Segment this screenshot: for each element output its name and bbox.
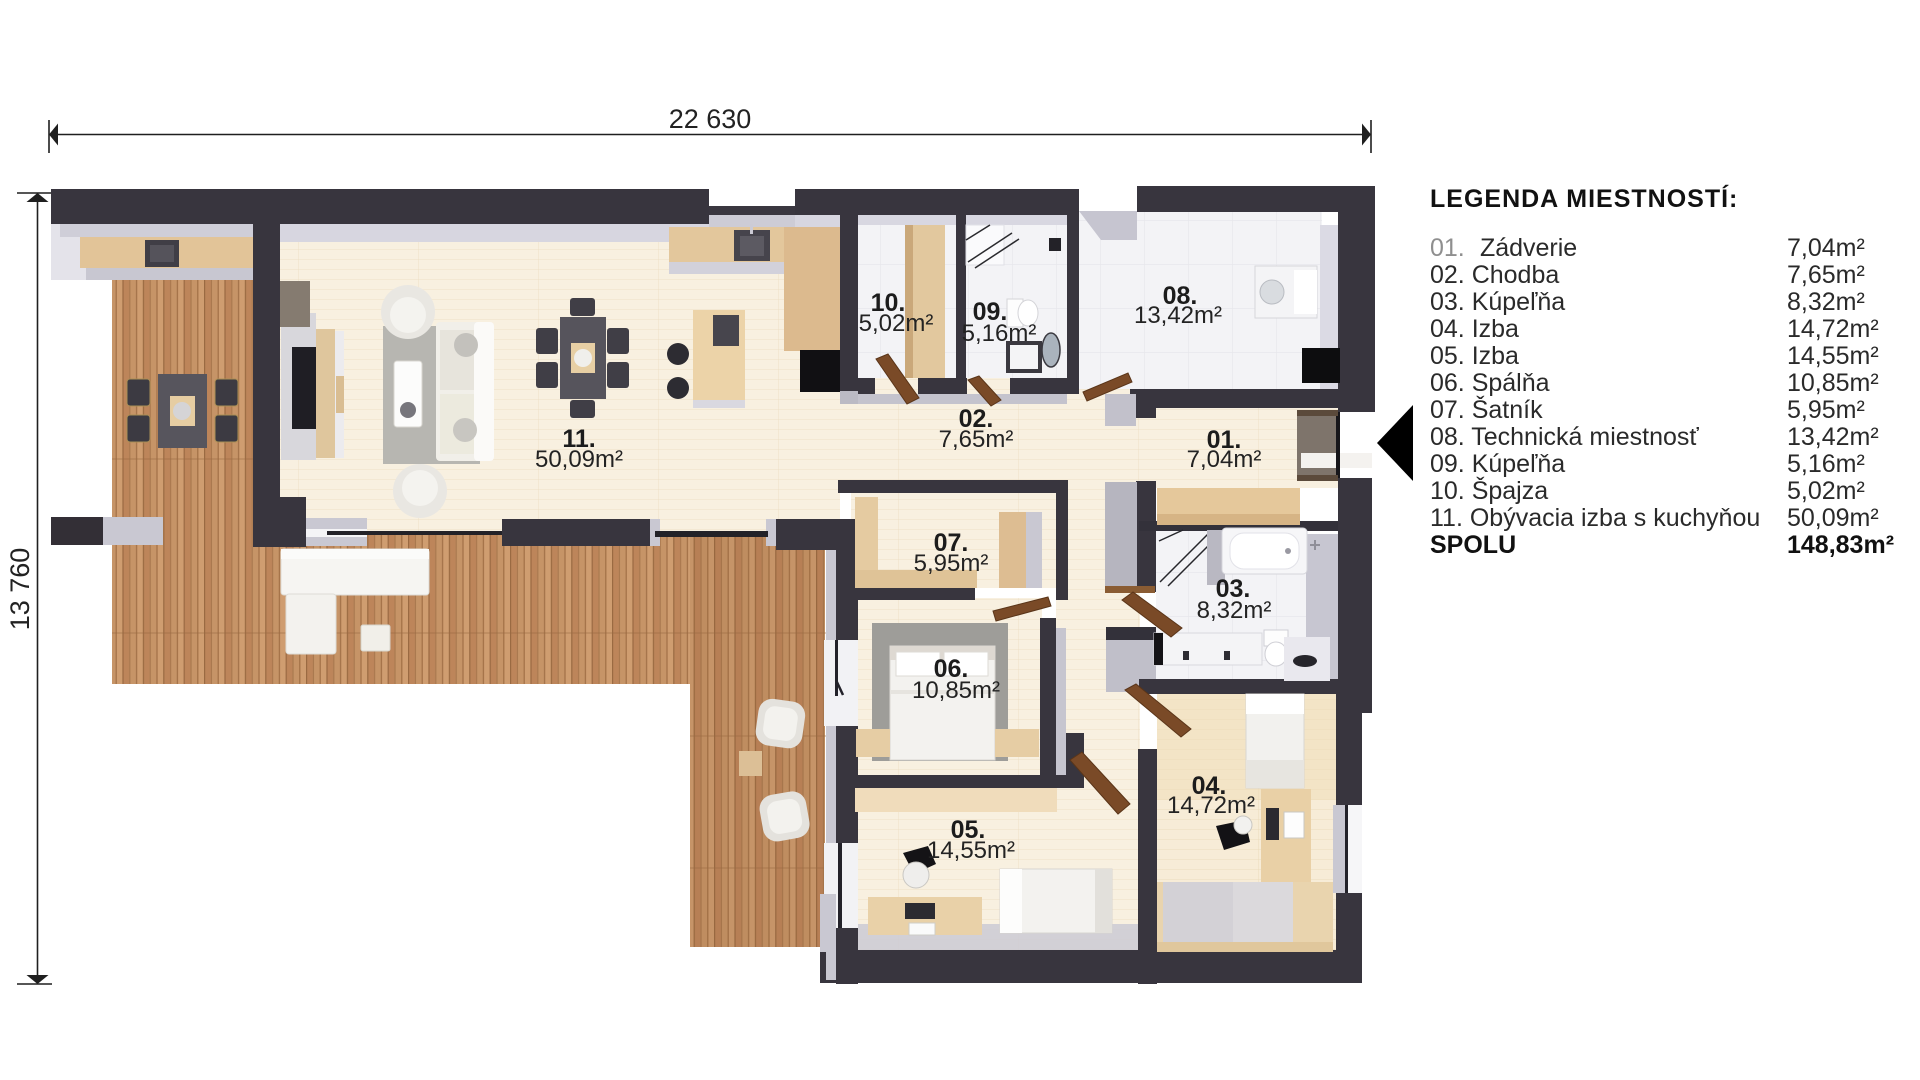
svg-text:08. Technická miestnosť: 08. Technická miestnosť <box>1430 423 1699 451</box>
svg-text:7,04m²: 7,04m² <box>1187 446 1262 473</box>
svg-text:10,85m²: 10,85m² <box>1787 369 1879 397</box>
svg-text:14,72m²: 14,72m² <box>1167 792 1255 819</box>
svg-text:09. Kúpeľňa: 09. Kúpeľňa <box>1430 450 1565 478</box>
svg-text:5,95m²: 5,95m² <box>914 550 989 577</box>
svg-text:11. Obývacia izba s kuchyňou: 11. Obývacia izba s kuchyňou <box>1430 504 1760 532</box>
svg-text:8,32m²: 8,32m² <box>1787 288 1865 316</box>
svg-text:7,65m²: 7,65m² <box>939 426 1014 453</box>
svg-text:13 760: 13 760 <box>5 548 35 631</box>
svg-text:13,42m²: 13,42m² <box>1787 423 1879 451</box>
svg-text:50,09m²: 50,09m² <box>1787 504 1879 532</box>
svg-text:14,72m²: 14,72m² <box>1787 315 1879 343</box>
svg-text:7,04m²: 7,04m² <box>1787 234 1865 262</box>
svg-text:8,32m²: 8,32m² <box>1197 597 1272 624</box>
svg-text:02. Chodba: 02. Chodba <box>1430 261 1559 289</box>
svg-text:5,02m²: 5,02m² <box>1787 477 1865 505</box>
svg-text:14,55m²: 14,55m² <box>927 837 1015 864</box>
svg-text:5,16m²: 5,16m² <box>1787 450 1865 478</box>
svg-text:SPOLU: SPOLU <box>1430 531 1516 559</box>
svg-text:5,02m²: 5,02m² <box>859 310 934 337</box>
svg-text:50,09m²: 50,09m² <box>535 446 623 473</box>
svg-text:5,16m²: 5,16m² <box>962 320 1037 347</box>
svg-text:13,42m²: 13,42m² <box>1134 302 1222 329</box>
svg-text:148,83m²: 148,83m² <box>1787 531 1894 559</box>
svg-text:06. Spálňa: 06. Spálňa <box>1430 369 1550 397</box>
svg-text:7,65m²: 7,65m² <box>1787 261 1865 289</box>
svg-text:03. Kúpeľňa: 03. Kúpeľňa <box>1430 288 1565 316</box>
svg-text:01. Zádverie: 01. Zádverie <box>1430 234 1577 262</box>
svg-text:04. Izba: 04. Izba <box>1430 315 1519 343</box>
svg-text:07. Šatník: 07. Šatník <box>1430 395 1543 424</box>
svg-text:10. Špajza: 10. Špajza <box>1430 476 1548 505</box>
svg-text:14,55m²: 14,55m² <box>1787 342 1879 370</box>
svg-text:LEGENDA MIESTNOSTÍ:: LEGENDA MIESTNOSTÍ: <box>1430 184 1738 213</box>
svg-text:22 630: 22 630 <box>669 104 752 134</box>
svg-text:10,85m²: 10,85m² <box>912 677 1000 704</box>
svg-text:5,95m²: 5,95m² <box>1787 396 1865 424</box>
svg-text:05. Izba: 05. Izba <box>1430 342 1519 370</box>
